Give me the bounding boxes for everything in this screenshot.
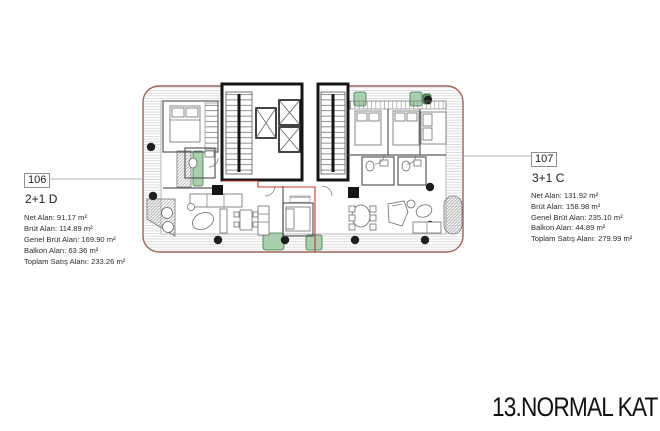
green-planter [193,151,203,186]
unit-area-line: Balkon Alan: 44.89 m² [531,223,632,234]
armchair [162,208,173,219]
tv-unit [220,209,227,233]
core-stairs-elevators [222,84,302,180]
unit-area-line: Toplam Satış Alanı: 279.99 m² [531,234,632,245]
toilet [402,161,410,171]
sink [414,160,421,166]
toilet [189,158,197,168]
corridor [302,85,318,180]
green-planter [263,233,284,250]
unit-area-line: Toplam Satış Alanı: 233.26 m² [24,256,125,267]
sink [205,151,214,157]
sink [380,160,388,166]
sofa [190,194,242,207]
unit-area-line: Brüt Alan: 158.98 m² [531,202,632,213]
unit-106-type: 2+1 D [25,192,125,206]
wardrobe [290,196,310,203]
kitchen-counter [258,206,269,235]
planter-rect [177,151,191,187]
unit-107-label: 107 3+1 C Net Alan: 131.92 m² Brüt Alan:… [531,149,632,245]
unit-area-line: Genel Brüt Alan: 169.90 m² [24,234,125,245]
core-fire-stairs [318,84,348,180]
unit-area-line: Net Alan: 131.92 m² [531,191,632,202]
unit-area-line: Balkon Alan: 63.36 m² [24,245,125,256]
unit-107-number: 107 [531,152,557,167]
unit-area-line: Genel Brüt Alan: 235.10 m² [531,213,632,224]
planter-round [444,196,462,234]
wardrobe [205,103,218,150]
green-planter [306,235,322,250]
unit-area-line: Brüt Alan: 114.89 m² [24,223,125,234]
floor-plan-page: 106 2+1 D Net Alan: 91.17 m² Brüt Alan: … [0,0,660,431]
side-table [188,204,195,211]
side-table [407,200,415,208]
wardrobe-strip [350,101,446,109]
unit-107-type: 3+1 C [532,171,632,185]
floor-title: 13.NORMAL KAT [492,392,658,423]
kitchen-table [240,210,252,230]
toilet [366,161,374,171]
unit-area-line: Net Alan: 91.17 m² [24,212,125,223]
unit-106-number: 106 [24,173,50,188]
unit-106-label: 106 2+1 D Net Alan: 91.17 m² Brüt Alan: … [24,170,125,267]
armchair [163,222,174,233]
